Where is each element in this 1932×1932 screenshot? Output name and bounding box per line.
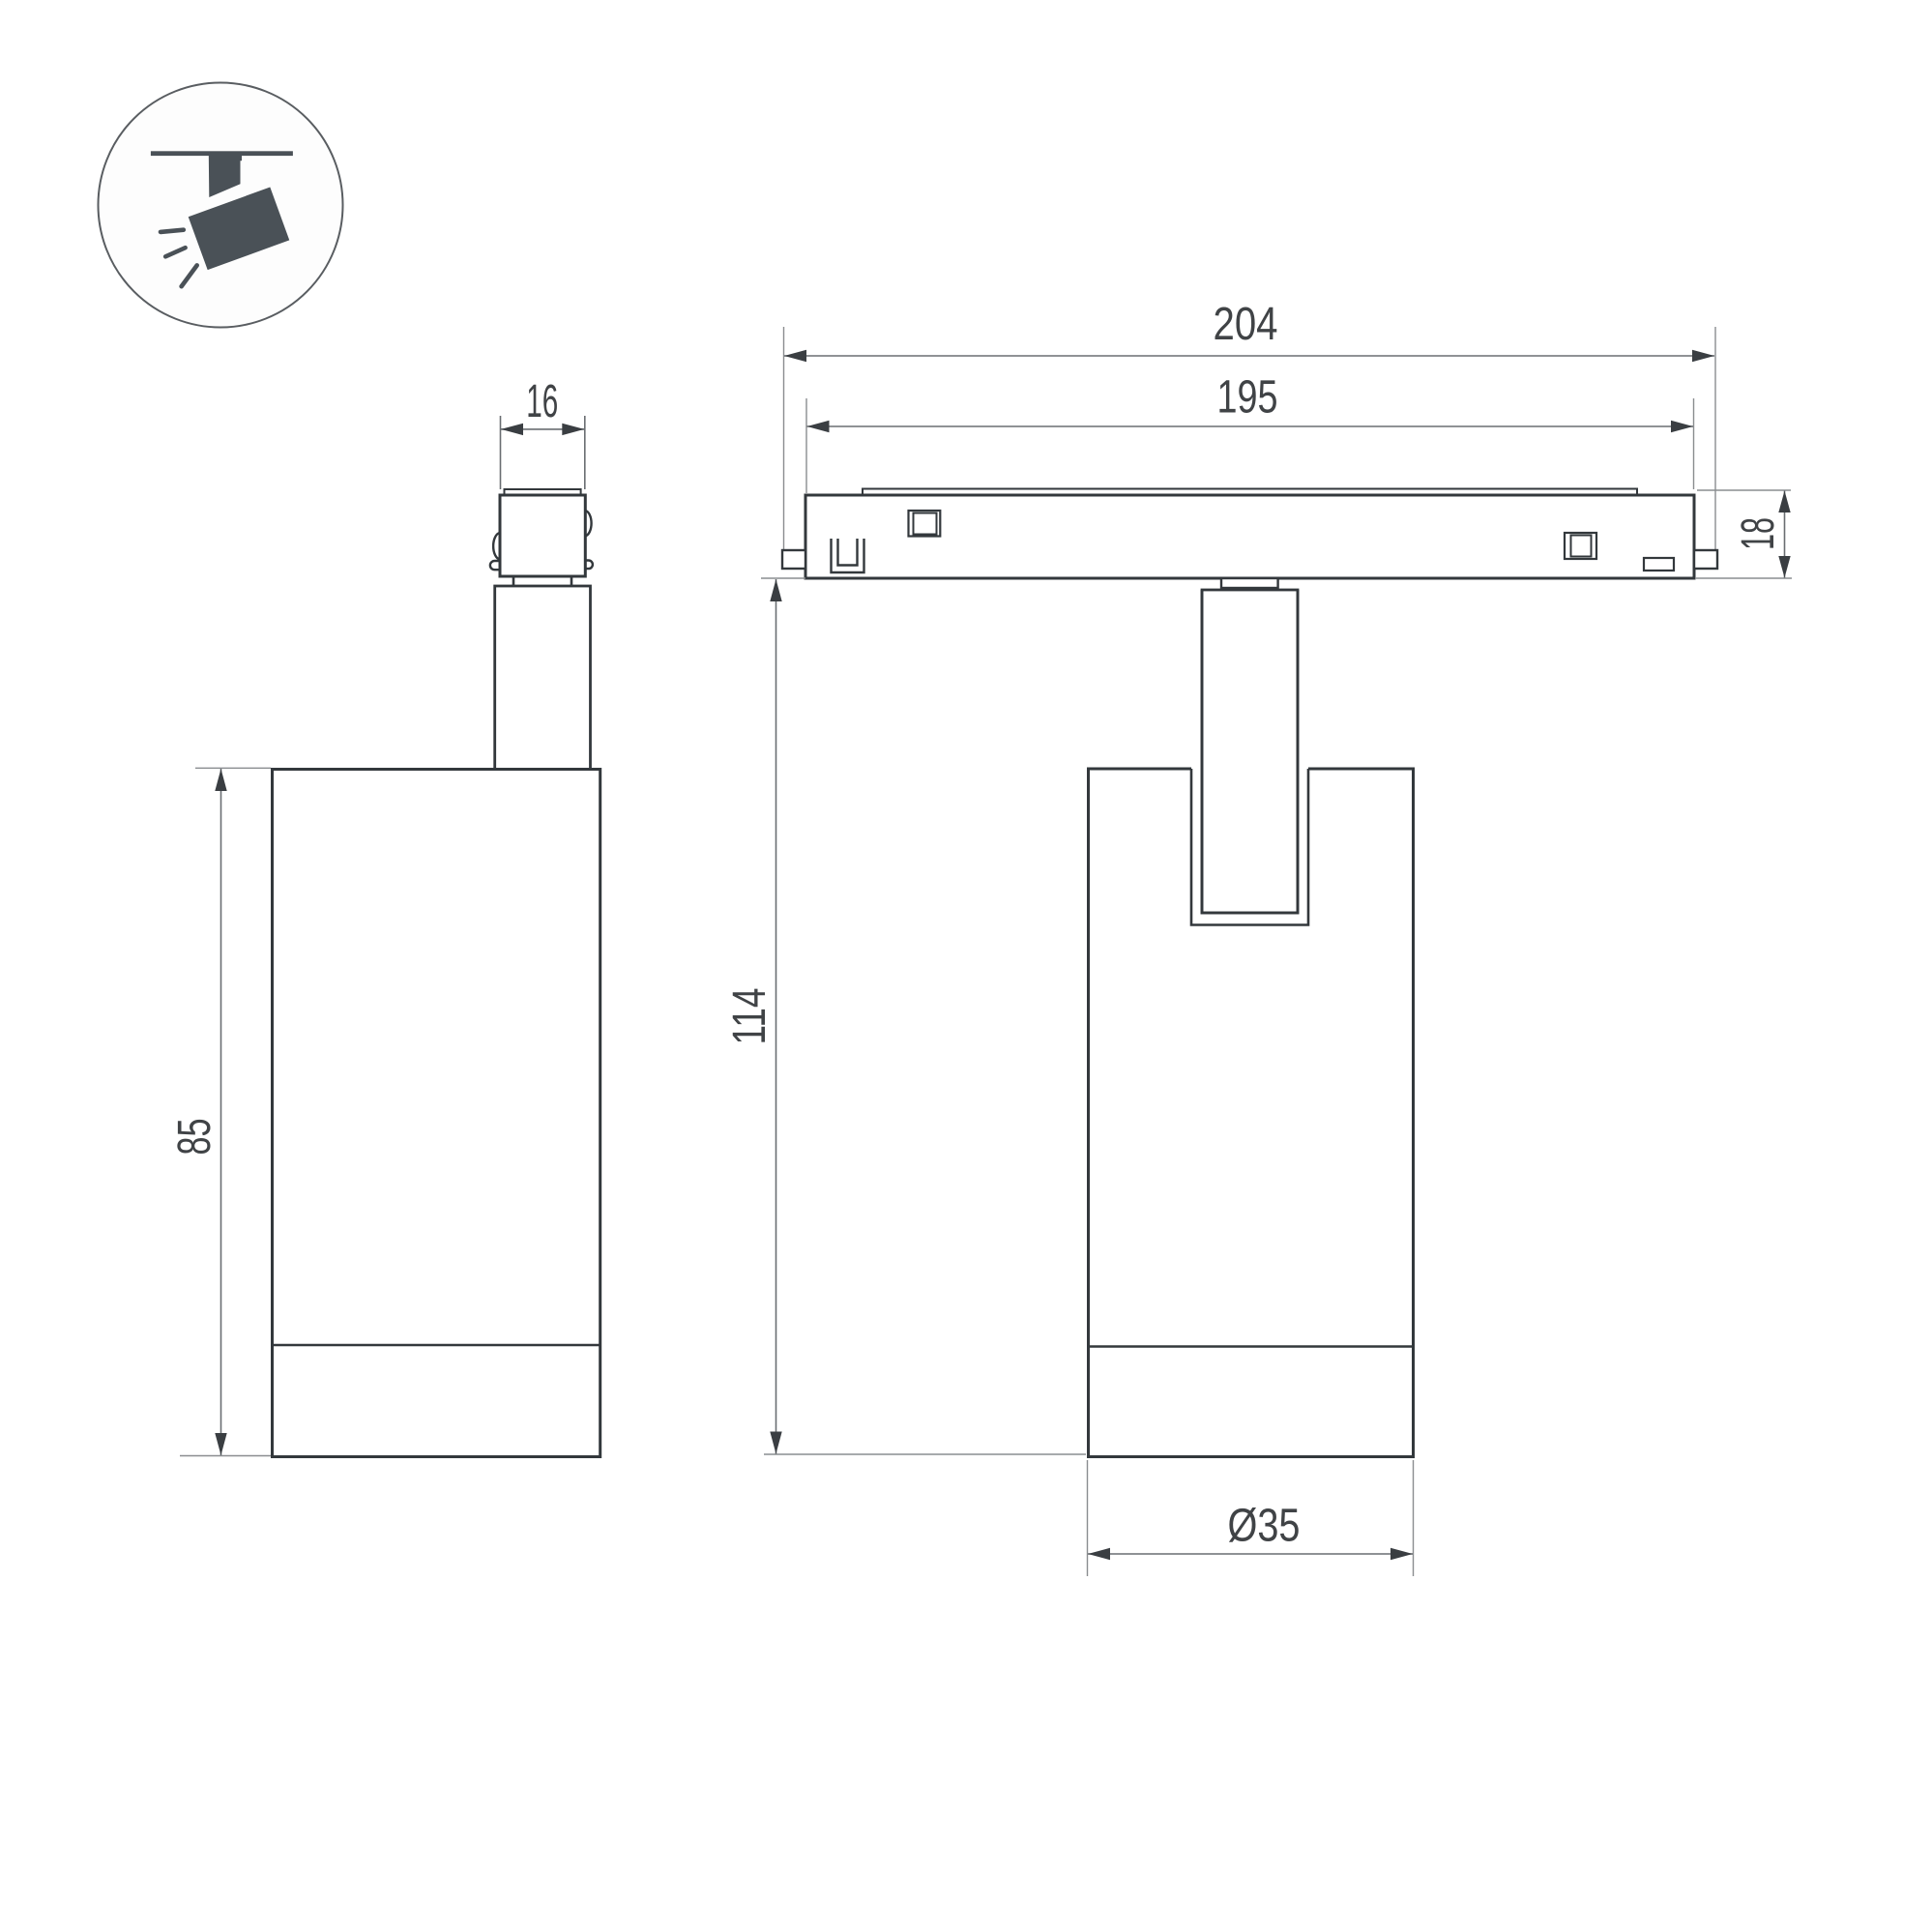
svg-text:16: 16	[526, 376, 558, 427]
svg-text:Ø35: Ø35	[1228, 1501, 1301, 1552]
svg-text:204: 204	[1214, 299, 1278, 350]
svg-text:85: 85	[169, 1119, 220, 1156]
svg-text:195: 195	[1217, 372, 1278, 424]
svg-text:18: 18	[1733, 517, 1784, 550]
svg-text:114: 114	[724, 988, 776, 1045]
